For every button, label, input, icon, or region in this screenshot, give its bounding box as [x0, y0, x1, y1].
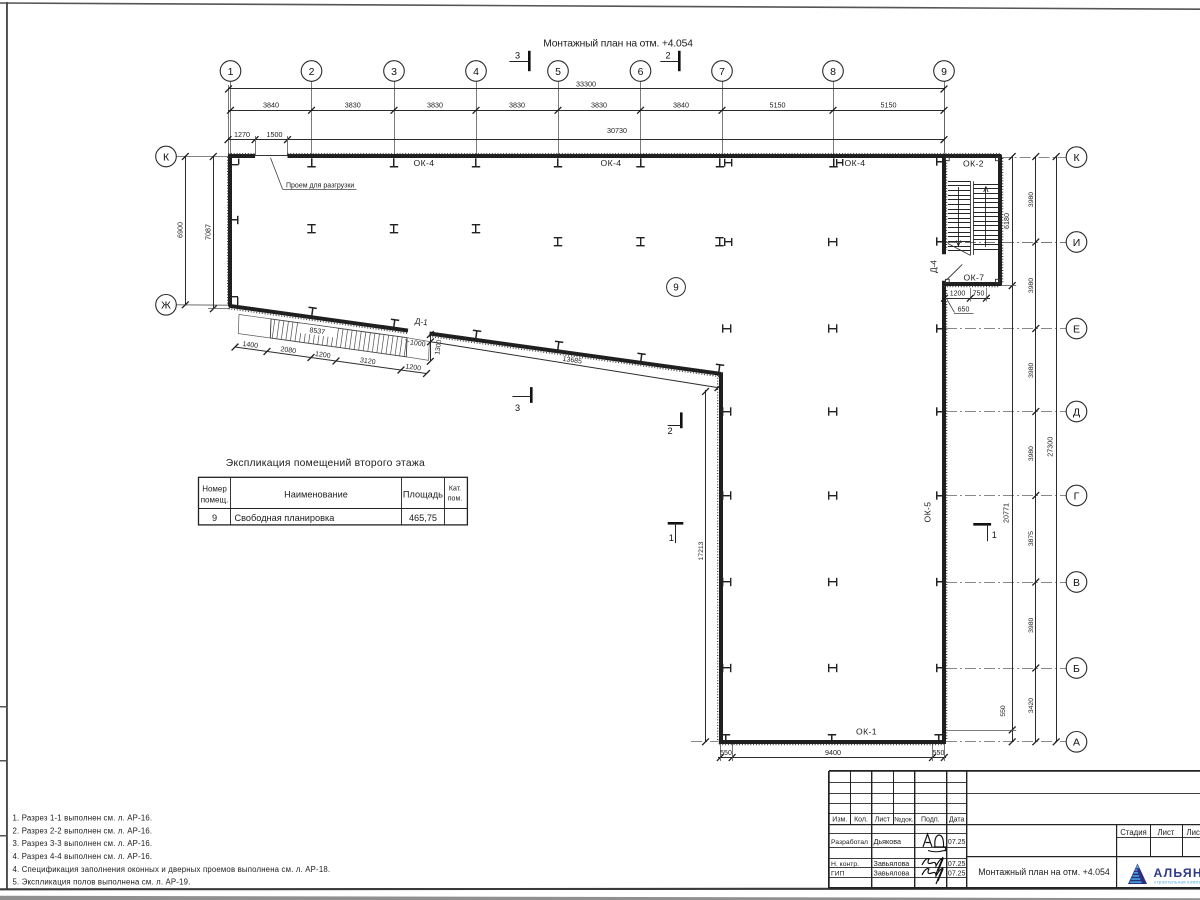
- svg-text:Завьялова: Завьялова: [874, 869, 910, 878]
- svg-text:Завьялова: Завьялова: [874, 859, 910, 868]
- svg-text:2: 2: [667, 426, 672, 436]
- svg-text:Номер: Номер: [202, 485, 227, 494]
- svg-text:Экспликация помещений второго: Экспликация помещений второго этажа: [226, 458, 425, 469]
- svg-text:ОК-2: ОК-2: [963, 159, 984, 169]
- svg-text:Листов: Листов: [1187, 828, 1200, 837]
- svg-text:9: 9: [673, 283, 678, 294]
- svg-text:465,75: 465,75: [409, 513, 437, 523]
- svg-text:Ж: Ж: [161, 300, 171, 312]
- svg-text:1500: 1500: [267, 130, 283, 139]
- svg-text:3: 3: [515, 403, 520, 413]
- svg-text:550: 550: [933, 750, 945, 757]
- svg-text:Д-1: Д-1: [414, 316, 429, 328]
- svg-text:ОК-5: ОК-5: [923, 502, 933, 523]
- svg-text:пом.: пом.: [448, 496, 462, 503]
- svg-text:3830: 3830: [509, 101, 525, 110]
- svg-text:1270: 1270: [234, 130, 250, 139]
- svg-text:ОК-4: ОК-4: [414, 158, 435, 168]
- svg-text:1. Разрез 1-1 выполнен см. л.: 1. Разрез 1-1 выполнен см. л. АР-16.: [13, 813, 153, 822]
- svg-text:3840: 3840: [673, 101, 689, 110]
- svg-text:5. Экспликация полов выполнена: 5. Экспликация полов выполнена см. л. АР…: [13, 878, 191, 887]
- svg-text:В: В: [1073, 577, 1080, 589]
- svg-text:5150: 5150: [881, 101, 897, 110]
- svg-text:30730: 30730: [607, 126, 627, 135]
- svg-text:2. Разрез 2-2 выполнен см. л.: 2. Разрез 2-2 выполнен см. л. АР-16.: [13, 826, 153, 835]
- svg-text:5150: 5150: [770, 101, 786, 110]
- svg-text:К: К: [163, 151, 170, 163]
- svg-text:2: 2: [309, 66, 315, 78]
- svg-text:ОК-7: ОК-7: [964, 272, 985, 282]
- svg-text:Б: Б: [1073, 663, 1080, 675]
- svg-text:К: К: [1073, 152, 1080, 164]
- svg-text:Разработал: Разработал: [831, 838, 868, 846]
- svg-text:Кат.: Кат.: [449, 486, 461, 493]
- svg-text:8: 8: [830, 66, 836, 78]
- svg-text:6: 6: [638, 66, 644, 78]
- svg-text:Монтажный план на отм. +4.054: Монтажный план на отм. +4.054: [543, 39, 693, 50]
- svg-text:И: И: [1073, 237, 1081, 249]
- svg-text:07.25: 07.25: [948, 871, 966, 878]
- svg-text:Г: Г: [1074, 490, 1080, 502]
- svg-text:Стадия: Стадия: [1120, 828, 1147, 837]
- svg-text:6180: 6180: [1002, 213, 1011, 229]
- svg-text:Наименование: Наименование: [284, 490, 348, 500]
- svg-text:3875: 3875: [1028, 531, 1035, 546]
- svg-text:ОК-1: ОК-1: [856, 726, 877, 736]
- svg-text:17213: 17213: [698, 541, 705, 560]
- svg-text:ГИП: ГИП: [831, 871, 845, 878]
- svg-text:ОК-4: ОК-4: [845, 158, 866, 168]
- svg-text:Д: Д: [1073, 406, 1080, 418]
- svg-text:Е: Е: [1073, 323, 1080, 335]
- svg-text:А: А: [1073, 737, 1080, 749]
- svg-text:Площадь: Площадь: [403, 490, 443, 500]
- svg-text:5: 5: [555, 66, 561, 78]
- svg-text:3980: 3980: [1028, 192, 1035, 207]
- svg-text:1200: 1200: [950, 291, 966, 298]
- svg-text:9400: 9400: [825, 748, 841, 757]
- svg-text:строительная компания: строительная компания: [1154, 880, 1200, 885]
- svg-text:4. Разрез 4-4 выполнен см. л.: 4. Разрез 4-4 выполнен см. л. АР-16.: [13, 852, 153, 861]
- svg-text:07.25: 07.25: [948, 861, 966, 868]
- svg-text:Дьякова: Дьякова: [874, 837, 901, 846]
- svg-text:550: 550: [720, 750, 732, 757]
- svg-text:3420: 3420: [1028, 698, 1035, 713]
- svg-text:4. Спецификация заполнения око: 4. Спецификация заполнения оконных и две…: [13, 865, 331, 874]
- svg-text:Проем для разгрузки: Проем для разгрузки: [286, 182, 354, 189]
- svg-text:3980: 3980: [1028, 278, 1035, 293]
- svg-text:Лист: Лист: [875, 817, 891, 824]
- svg-text:Монтажный план на отм. +4.054: Монтажный план на отм. +4.054: [978, 867, 1110, 877]
- svg-text:33300: 33300: [576, 79, 596, 88]
- svg-text:Свободная планировка: Свободная планировка: [235, 513, 336, 523]
- svg-text:Н. контр.: Н. контр.: [831, 861, 859, 868]
- svg-text:550: 550: [1000, 705, 1007, 717]
- svg-text:3830: 3830: [427, 101, 443, 110]
- svg-text:№док.: №док.: [894, 817, 913, 824]
- svg-text:650: 650: [958, 307, 970, 314]
- svg-text:3: 3: [391, 66, 397, 78]
- svg-text:9: 9: [212, 513, 217, 523]
- svg-text:помещ.: помещ.: [201, 496, 229, 505]
- svg-text:3830: 3830: [591, 101, 607, 110]
- svg-text:4: 4: [473, 66, 479, 78]
- svg-text:Д-4: Д-4: [930, 260, 939, 273]
- svg-text:20771: 20771: [1002, 503, 1011, 523]
- svg-text:1: 1: [669, 533, 674, 543]
- svg-text:3980: 3980: [1028, 446, 1035, 461]
- svg-text:Подп.: Подп.: [921, 817, 940, 824]
- svg-text:Лист: Лист: [1158, 828, 1175, 837]
- svg-text:3980: 3980: [1028, 618, 1035, 633]
- svg-text:Кол.: Кол.: [854, 817, 868, 824]
- svg-text:3. Разрез 3-3 выполнен см. л.: 3. Разрез 3-3 выполнен см. л. АР-16.: [13, 839, 153, 848]
- svg-text:750: 750: [973, 291, 985, 298]
- svg-text:7087: 7087: [204, 224, 213, 240]
- svg-text:3840: 3840: [263, 101, 279, 110]
- svg-text:7: 7: [719, 66, 725, 78]
- svg-text:2: 2: [665, 51, 670, 61]
- svg-text:27300: 27300: [1046, 437, 1055, 457]
- svg-text:3830: 3830: [345, 101, 361, 110]
- svg-text:07.25: 07.25: [948, 839, 966, 846]
- svg-text:9: 9: [941, 66, 947, 78]
- svg-text:6900: 6900: [176, 222, 185, 238]
- svg-text:Изм.: Изм.: [832, 817, 847, 824]
- svg-text:АЛЬЯНС: АЛЬЯНС: [1154, 866, 1200, 880]
- svg-text:ОК-4: ОК-4: [601, 158, 622, 168]
- svg-text:3980: 3980: [1028, 363, 1035, 378]
- svg-text:3: 3: [515, 51, 520, 61]
- svg-text:1: 1: [992, 530, 997, 540]
- svg-text:Дата: Дата: [949, 817, 965, 824]
- svg-text:1: 1: [228, 66, 234, 78]
